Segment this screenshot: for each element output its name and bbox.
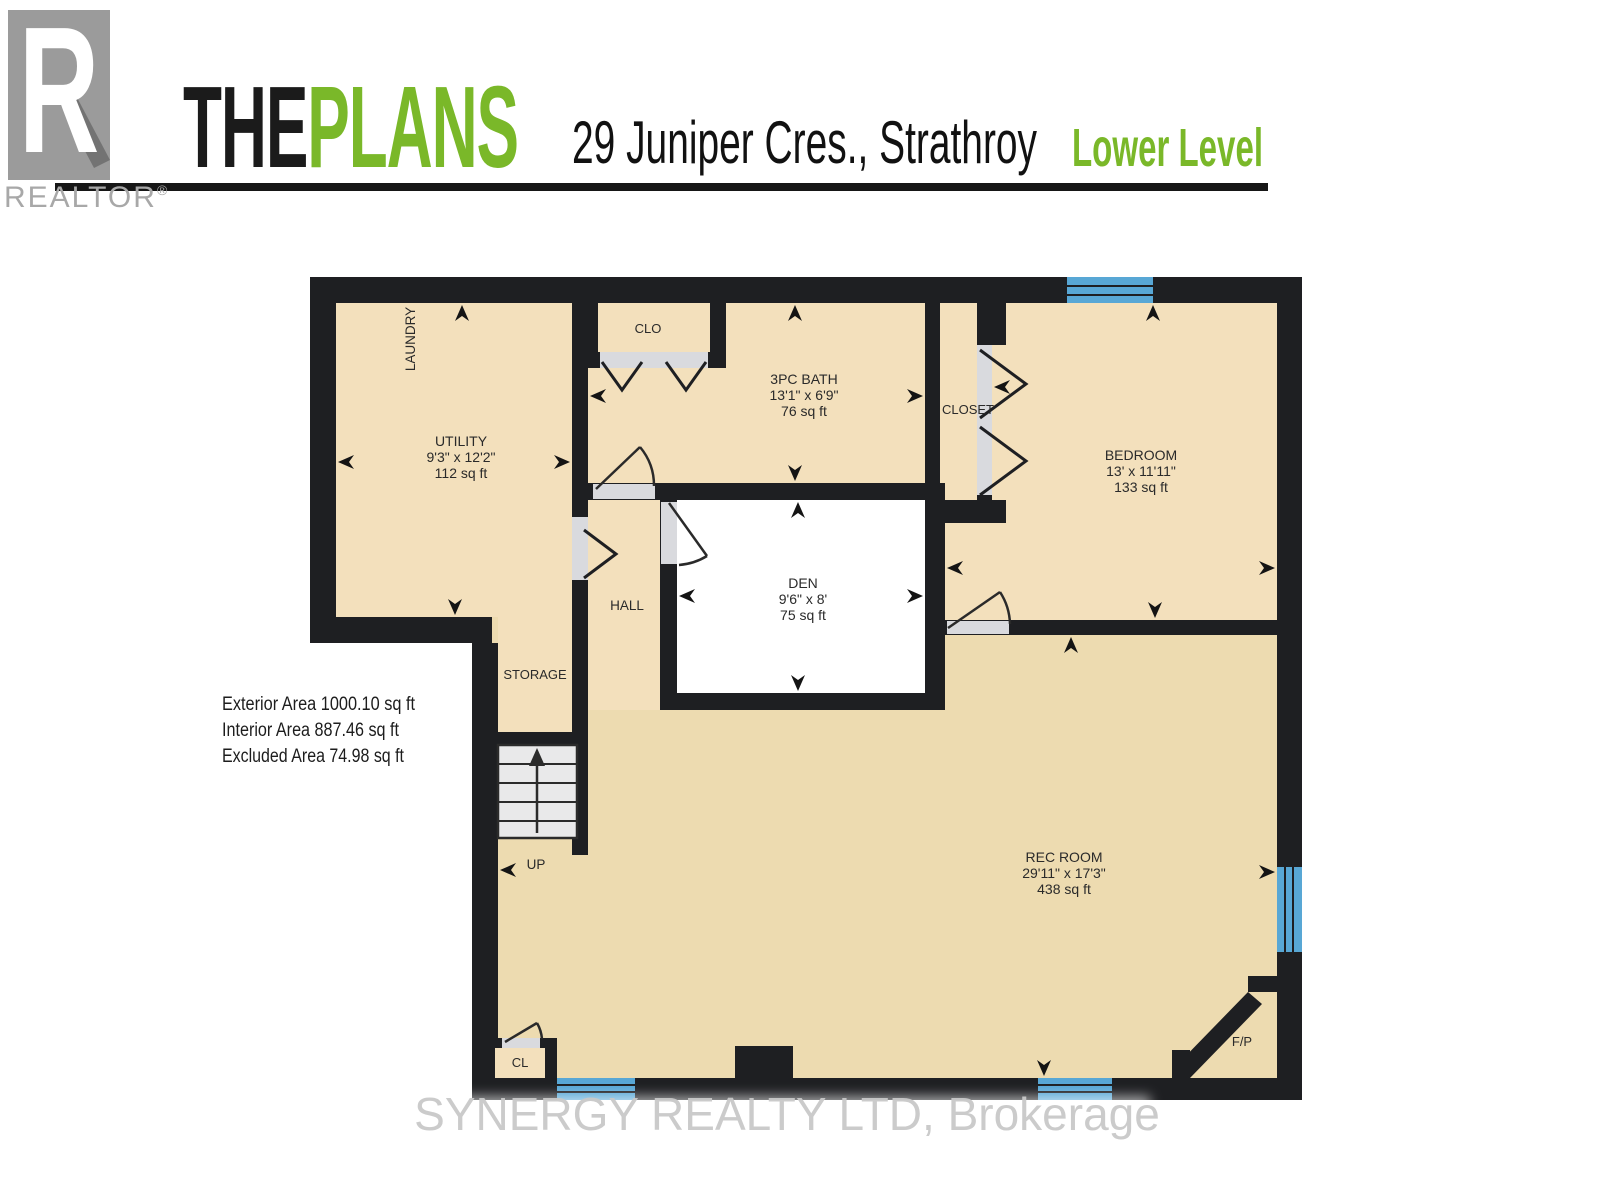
fireplace-wall-stub2: [1248, 976, 1277, 992]
watermark-text: SYNERGY REALTY LTD, Brokerage: [414, 1088, 1160, 1140]
room-dims-den: 9'6" x 8': [779, 591, 827, 607]
realtor-wordmark: REALTOR®: [4, 181, 169, 214]
staircase: [498, 745, 577, 838]
brand-title: THEPLANS: [183, 62, 518, 192]
excluded-area-text: Excluded Area 74.98 sq ft: [222, 746, 405, 767]
room-label-bath: 3PC BATH: [770, 371, 837, 387]
room-label-laundry: LAUNDRY: [403, 307, 418, 371]
floor-plan-page: R REALTOR® THEPLANS 29 Juniper Cres., St…: [0, 0, 1600, 1182]
window: [1067, 277, 1153, 303]
room-label-den: DEN: [788, 575, 818, 591]
storage-stairs-wall: [492, 732, 588, 745]
brand-plans: PLANS: [307, 62, 518, 192]
room-dims-rec-room: 29'11" x 17'3": [1022, 865, 1106, 881]
clo-door-opening: [600, 352, 708, 368]
room-dims-bath: 13'1" x 6'9": [770, 387, 839, 403]
closet-door-opening: [977, 345, 992, 495]
window: [1277, 867, 1302, 952]
room-label-hall: HALL: [610, 598, 644, 613]
den-bottom-wall: [660, 693, 945, 710]
door-opening: [593, 484, 655, 499]
area-summary: Exterior Area 1000.10 sq ft Interior Are…: [222, 694, 416, 767]
room-dims-utility: 9'3" x 12'2": [427, 449, 496, 465]
utility-door-opening: [572, 517, 588, 580]
room-area-bedroom: 133 sq ft: [1114, 479, 1168, 495]
room-area-rec-room: 438 sq ft: [1037, 881, 1091, 897]
floor-plan-canvas: R REALTOR® THEPLANS 29 Juniper Cres., St…: [0, 0, 1600, 1182]
room-area-den: 75 sq ft: [780, 607, 826, 623]
room-label-fireplace: F/P: [1232, 1034, 1252, 1049]
utility-bottom-wall: [310, 617, 492, 643]
closet-wall-stub: [992, 303, 1006, 345]
room-dims-bedroom: 13' x 11'11": [1106, 463, 1176, 479]
room-label-bedroom: BEDROOM: [1105, 447, 1177, 463]
room-label-clo: CLO: [635, 321, 662, 336]
room-label-utility: UTILITY: [435, 433, 488, 449]
stairs-up-label: UP: [527, 857, 546, 872]
realtor-logo-letter: R: [19, 0, 100, 190]
room-label-closet: CLOSET: [942, 402, 994, 417]
address-title: 29 Juniper Cres., Strathroy: [572, 109, 1037, 176]
realtor-wordmark-text: REALTOR: [4, 181, 157, 214]
room-area-utility: 112 sq ft: [435, 465, 488, 481]
registered-mark: ®: [157, 182, 169, 198]
level-title: Lower Level: [1072, 118, 1263, 178]
interior-area-text: Interior Area 887.46 sq ft: [222, 720, 400, 741]
room-area-bath: 76 sq ft: [781, 403, 827, 419]
exterior-area-text: Exterior Area 1000.10 sq ft: [222, 694, 416, 715]
room-label-cl: CL: [512, 1055, 529, 1070]
bath-closet-wall: [925, 303, 940, 500]
chimney-bump: [735, 1046, 793, 1078]
brand-the: THE: [183, 62, 307, 192]
closet-bottom-wall: [925, 500, 1006, 523]
room-label-rec-room: REC ROOM: [1026, 849, 1103, 865]
room-label-storage: STORAGE: [503, 667, 567, 682]
watermark: SYNERGY REALTY LTD, Brokerage: [414, 1088, 1160, 1146]
